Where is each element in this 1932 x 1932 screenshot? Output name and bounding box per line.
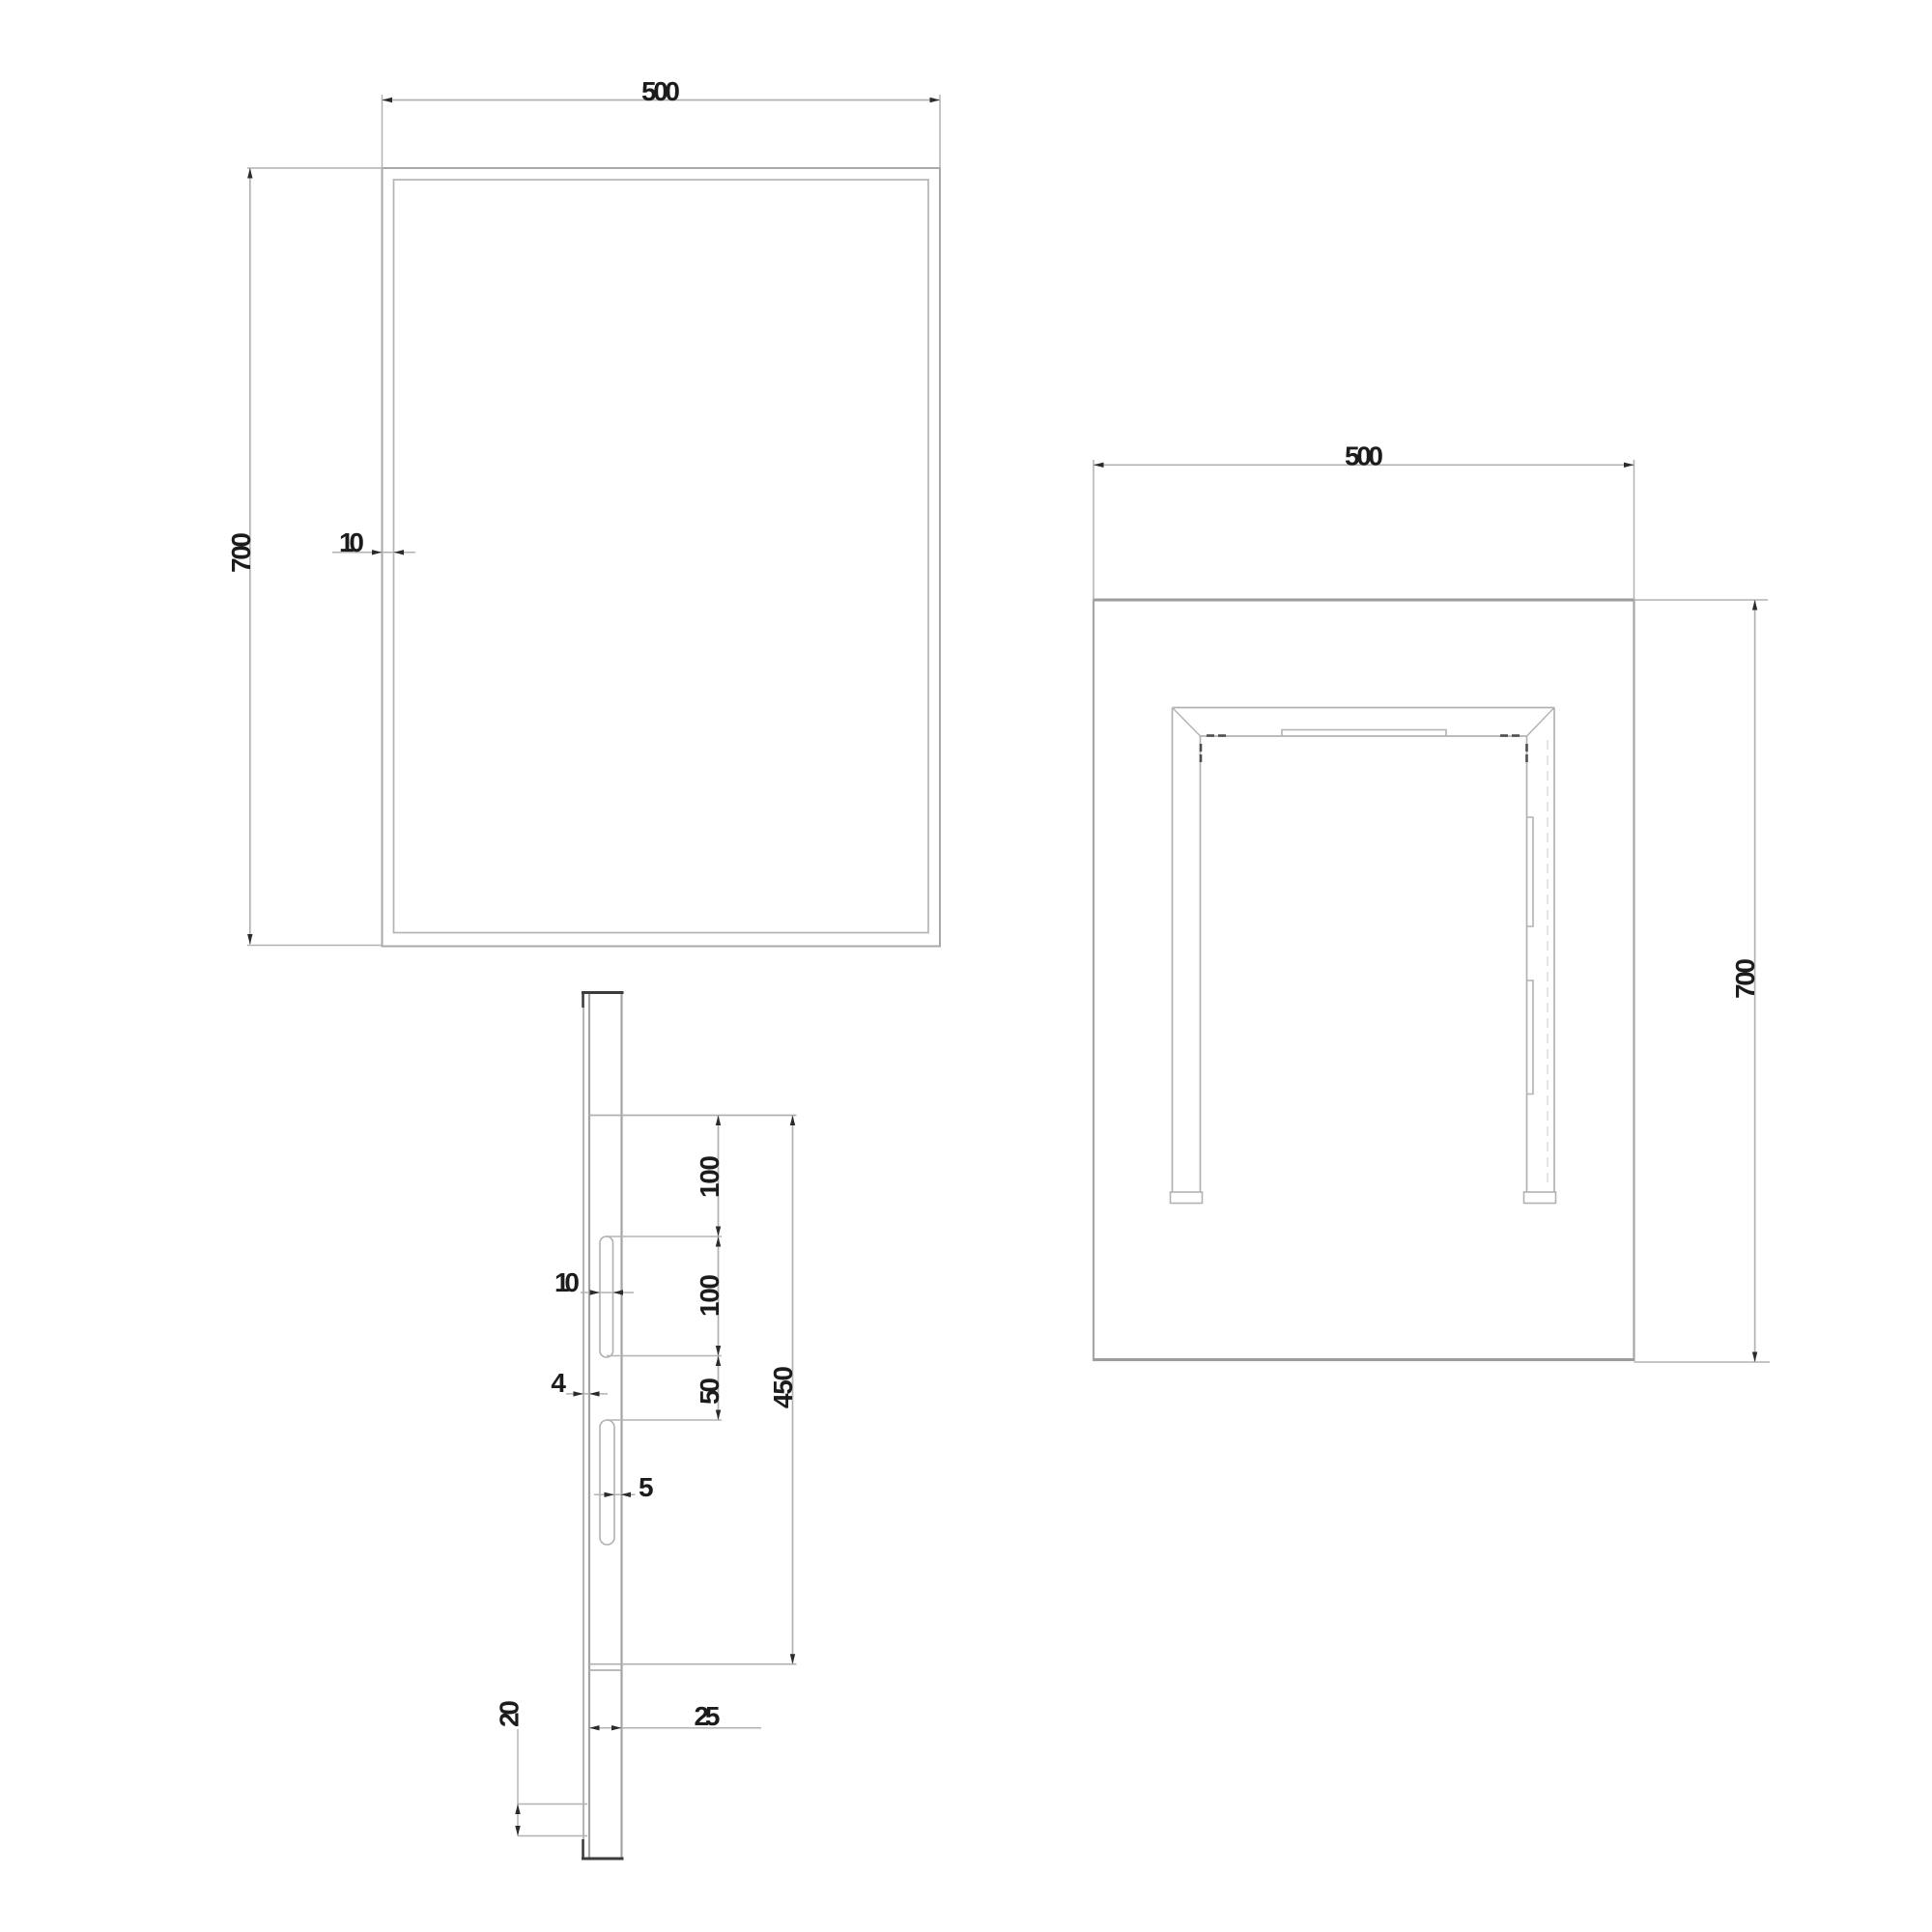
svg-text:450: 450: [768, 1366, 798, 1408]
svg-text:20: 20: [495, 1700, 525, 1727]
svg-text:700: 700: [1730, 958, 1760, 999]
svg-text:100: 100: [695, 1155, 724, 1198]
svg-text:500: 500: [641, 76, 680, 106]
svg-text:50: 50: [695, 1378, 724, 1405]
svg-text:500: 500: [1345, 441, 1383, 471]
svg-text:10: 10: [339, 527, 364, 557]
svg-text:5: 5: [639, 1472, 654, 1502]
svg-text:25: 25: [695, 1701, 721, 1731]
svg-text:700: 700: [226, 532, 256, 573]
svg-text:4: 4: [551, 1368, 566, 1398]
svg-text:10: 10: [554, 1267, 580, 1297]
svg-text:100: 100: [695, 1274, 724, 1317]
